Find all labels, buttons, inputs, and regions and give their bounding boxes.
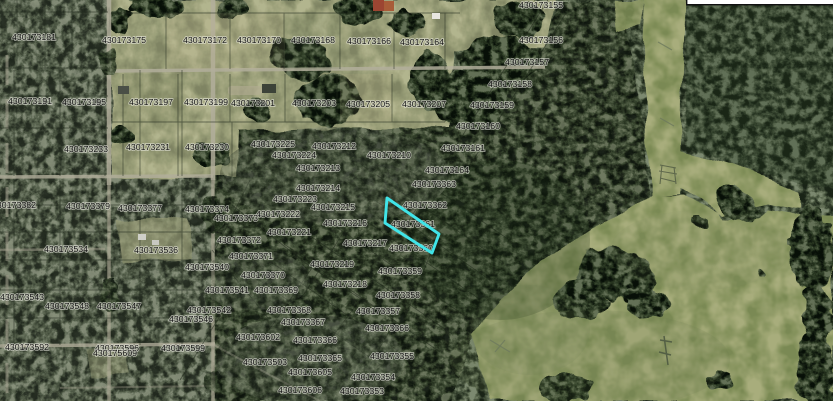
svg-text:430173382: 430173382 — [0, 200, 36, 210]
svg-text:430173592: 430173592 — [5, 342, 49, 352]
svg-text:430173367: 430173367 — [281, 317, 325, 327]
svg-text:430173168: 430173168 — [291, 35, 335, 45]
svg-text:430173370: 430173370 — [241, 270, 285, 280]
svg-text:430173231: 430173231 — [126, 142, 170, 152]
svg-text:430173599: 430173599 — [161, 343, 205, 353]
svg-text:430173161: 430173161 — [441, 143, 485, 153]
svg-text:430173159: 430173159 — [470, 100, 514, 110]
svg-text:430173362: 430173362 — [403, 200, 447, 210]
svg-text:430175609: 430175609 — [93, 348, 137, 358]
svg-text:430173215: 430173215 — [311, 202, 355, 212]
svg-text:430173503: 430173503 — [243, 357, 287, 367]
svg-text:430173543: 430173543 — [0, 292, 44, 302]
svg-text:430173373: 430173373 — [214, 213, 258, 223]
svg-text:430173379: 430173379 — [66, 201, 110, 211]
svg-text:430173359: 430173359 — [378, 266, 422, 276]
svg-text:430173199: 430173199 — [184, 97, 228, 107]
svg-text:430173369: 430173369 — [254, 285, 298, 295]
svg-text:430173191: 430173191 — [8, 96, 52, 106]
svg-text:430173207: 430173207 — [402, 99, 446, 109]
svg-text:430173357: 430173357 — [356, 306, 400, 316]
svg-text:430173233: 430173233 — [64, 144, 108, 154]
svg-text:430173354: 430173354 — [351, 372, 395, 382]
svg-text:430173546: 430173546 — [169, 314, 213, 324]
svg-text:430173157: 430173157 — [505, 57, 549, 67]
svg-text:430173217: 430173217 — [343, 238, 387, 248]
svg-text:430173602: 430173602 — [236, 332, 280, 342]
svg-text:430173201: 430173201 — [231, 98, 275, 108]
svg-text:430173212: 430173212 — [312, 141, 356, 151]
svg-text:430173164: 430173164 — [400, 37, 444, 47]
svg-text:430173358: 430173358 — [376, 290, 420, 300]
svg-text:430173170: 430173170 — [237, 35, 281, 45]
svg-text:430173195: 430173195 — [62, 97, 106, 107]
svg-text:430173222: 430173222 — [256, 209, 300, 219]
svg-text:430173353: 430173353 — [340, 386, 384, 396]
svg-text:430173216: 430173216 — [323, 218, 367, 228]
svg-text:430173547: 430173547 — [97, 301, 141, 311]
svg-text:430173224: 430173224 — [272, 150, 316, 160]
svg-text:430173606: 430173606 — [278, 385, 322, 395]
svg-text:430173156: 430173156 — [519, 35, 563, 45]
svg-text:430173366: 430173366 — [365, 323, 409, 333]
svg-text:430173160: 430173160 — [456, 121, 500, 131]
svg-text:430173210: 430173210 — [367, 150, 411, 160]
svg-text:430173225: 430173225 — [251, 139, 295, 149]
svg-text:430173540: 430173540 — [185, 262, 229, 272]
svg-text:430173219: 430173219 — [310, 259, 354, 269]
svg-text:430173368: 430173368 — [267, 305, 311, 315]
svg-text:430173166: 430173166 — [347, 36, 391, 46]
svg-text:430173536: 430173536 — [134, 245, 178, 255]
svg-text:430173371: 430173371 — [229, 251, 273, 261]
svg-text:430173214: 430173214 — [296, 183, 340, 193]
svg-text:430173172: 430173172 — [183, 35, 227, 45]
svg-text:430173230: 430173230 — [185, 142, 229, 152]
svg-text:430173605: 430173605 — [288, 367, 332, 377]
svg-text:430173366: 430173366 — [293, 335, 337, 345]
svg-text:430173164: 430173164 — [425, 165, 469, 175]
svg-text:430173372: 430173372 — [217, 235, 261, 245]
svg-text:430173181: 430173181 — [12, 32, 56, 42]
svg-text:430173205: 430173205 — [346, 99, 390, 109]
svg-text:430173218: 430173218 — [323, 279, 367, 289]
svg-text:430173541: 430173541 — [205, 285, 249, 295]
svg-text:430173175: 430173175 — [102, 35, 146, 45]
svg-text:430173221: 430173221 — [267, 227, 311, 237]
svg-text:430173377: 430173377 — [118, 203, 162, 213]
svg-text:430173158: 430173158 — [488, 79, 532, 89]
svg-text:430173363: 430173363 — [412, 179, 456, 189]
svg-text:430173155: 430173155 — [519, 0, 563, 10]
svg-text:430173213: 430173213 — [296, 163, 340, 173]
svg-text:430173365: 430173365 — [298, 353, 342, 363]
svg-text:430173534: 430173534 — [44, 244, 88, 254]
svg-text:430173548: 430173548 — [45, 301, 89, 311]
svg-text:430173355: 430173355 — [370, 351, 414, 361]
svg-text:430173197: 430173197 — [129, 97, 173, 107]
svg-text:430173203: 430173203 — [292, 98, 336, 108]
